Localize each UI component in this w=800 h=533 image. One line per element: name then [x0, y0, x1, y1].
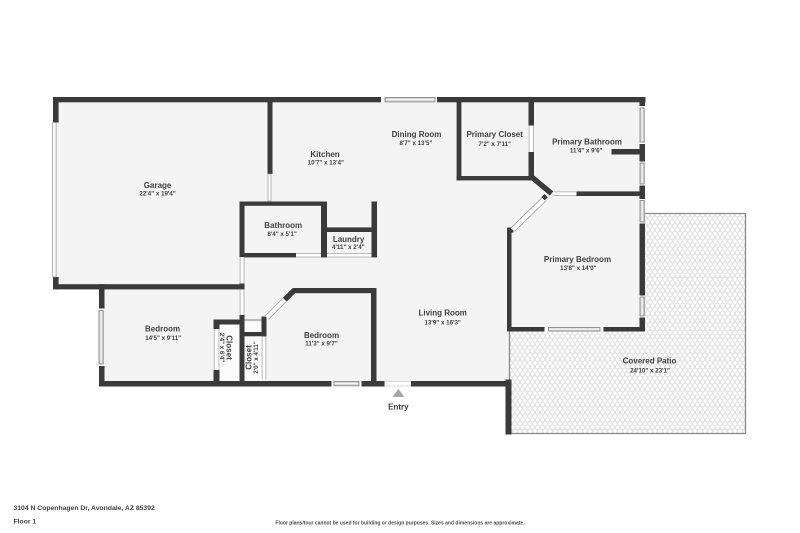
svg-text:10'7" x 13'4": 10'7" x 13'4" — [308, 159, 344, 166]
svg-text:13'8" x 14'0": 13'8" x 14'0" — [560, 265, 596, 272]
svg-text:22'4" x 19'4": 22'4" x 19'4" — [139, 191, 175, 198]
svg-text:8'4" x 5'1": 8'4" x 5'1" — [267, 231, 297, 238]
svg-text:4'11" x 2'4": 4'11" x 2'4" — [332, 244, 365, 251]
svg-text:Floor plans/tour cannot be use: Floor plans/tour cannot be used for buil… — [275, 521, 525, 527]
svg-text:Kitchen: Kitchen — [310, 150, 339, 159]
svg-text:3104 N Copenhagen Dr, Avondale: 3104 N Copenhagen Dr, Avondale, AZ 85392 — [14, 505, 155, 512]
svg-text:24'10" x 23'1": 24'10" x 23'1" — [630, 368, 670, 375]
svg-text:Floor 1: Floor 1 — [14, 519, 37, 526]
svg-text:11'4" x 9'6": 11'4" x 9'6" — [570, 147, 603, 154]
svg-text:13'9" x 16'3": 13'9" x 16'3" — [425, 320, 461, 327]
svg-text:Bedroom: Bedroom — [145, 324, 180, 333]
svg-text:Dining Room: Dining Room — [392, 130, 442, 139]
svg-text:Primary Bedroom: Primary Bedroom — [544, 255, 611, 264]
svg-text:8'7" x 13'5": 8'7" x 13'5" — [399, 140, 432, 147]
svg-text:Entry: Entry — [388, 402, 409, 411]
svg-text:Garage: Garage — [144, 181, 172, 190]
svg-text:14'5" x 9'11": 14'5" x 9'11" — [145, 335, 181, 342]
svg-text:Primary Bathroom: Primary Bathroom — [552, 138, 622, 147]
svg-text:Bathroom: Bathroom — [264, 221, 302, 230]
svg-text:11'3" x 9'7": 11'3" x 9'7" — [305, 340, 338, 347]
svg-text:Bedroom: Bedroom — [304, 331, 339, 340]
svg-text:Covered Patio: Covered Patio — [623, 356, 677, 365]
svg-text:7'2" x 7'11": 7'2" x 7'11" — [478, 141, 511, 148]
svg-text:Living Room: Living Room — [418, 309, 466, 318]
svg-text:Primary Closet: Primary Closet — [466, 130, 523, 139]
svg-text:Laundry: Laundry — [333, 235, 365, 244]
svg-text:2'0" x 4'11": 2'0" x 4'11" — [253, 341, 260, 374]
